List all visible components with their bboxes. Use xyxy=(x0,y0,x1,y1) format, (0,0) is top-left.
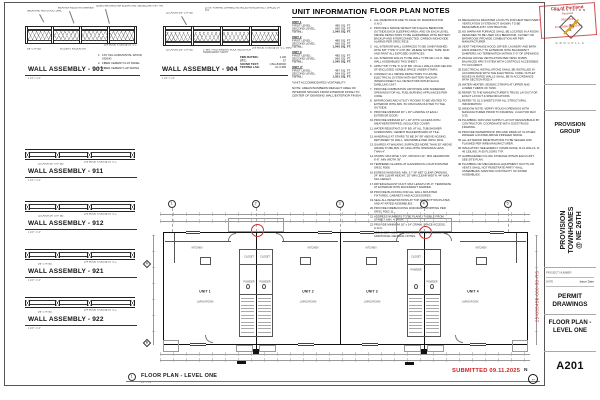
submitted-stamp: SUBMITTED 09.11.2025 xyxy=(452,368,520,374)
room-label-living: LIVING ROOM xyxy=(300,301,317,304)
note-item: ELECTRICAL INSTALLATIONS SHALL BE INSTAL… xyxy=(458,68,540,82)
note-item: TEMPERED GLAZING AT HAZARDOUS LOCATIONS … xyxy=(370,163,452,170)
note-item: PLUMBING OR MECHANICAL EQUIPMENT, DUCTS … xyxy=(458,163,540,177)
window-marker xyxy=(362,343,378,345)
toilet-fixture xyxy=(430,284,434,289)
scale-bar xyxy=(405,362,414,365)
sheet-title-line2: LEVEL ONE xyxy=(546,328,594,336)
room-label-powder: POWDER xyxy=(259,281,270,284)
window-marker xyxy=(190,343,206,345)
note-item: INSULATION: SEE ENERGY COMPLIANCE; R-21 … xyxy=(458,147,540,154)
assembly-scale: 1 1/2" = 1'-0" xyxy=(162,77,175,80)
note-item: NO WARM AIR FURNACE SHALL BE LOCATED IN … xyxy=(458,31,540,45)
rating-table: FIRE RATING:1 HR STC:57 SOUND TEST:USG-8… xyxy=(240,56,290,70)
callout: SHEATHING PER STRUCTURAL xyxy=(27,10,62,13)
note-item: BATHROOMS AND UTILITY ROOMS TO BE VENTED… xyxy=(370,100,452,110)
note-item: EGRESS WINDOWS: MIN. 5.7 SF NET CLEAR OP… xyxy=(370,171,452,181)
window-marker xyxy=(298,343,314,345)
view-title-rule xyxy=(126,381,540,382)
note-item: VENT THE RANGE HOOD, DRYER, LAUNDRY AND … xyxy=(458,45,540,55)
unit-row-total: TOTAL:1,045 SQ. FT. xyxy=(292,31,351,34)
rating-row: TESTING LAB:UL U305 xyxy=(240,66,286,69)
siding-type-item: 1X6 T&G HORIZONTAL WOOD SIDING xyxy=(98,54,143,61)
entry-stoop xyxy=(259,345,276,352)
title-rule xyxy=(25,277,137,278)
stamp-line: 25-035456-000-00-RS xyxy=(553,23,583,29)
assembly-scale: 1 1/2" = 1'-0" xyxy=(28,279,41,282)
assembly-title: WALL ASSEMBLY - 904 xyxy=(162,66,238,73)
window-marker xyxy=(490,231,504,233)
callout: 2X4 WOOD STUDS @ 16" O.C. xyxy=(84,261,117,264)
room-label-unit: UNIT 4 xyxy=(467,290,478,293)
stair-run xyxy=(241,298,254,334)
callout: (1) LAYER 5/8" GYP. BD. xyxy=(38,163,64,166)
assembly-scale: 1 1/2" = 1'-0" xyxy=(28,77,41,80)
sheet-title-line1: FLOOR PLAN - xyxy=(546,320,594,328)
room-label-kitchen: KITCHEN xyxy=(366,247,377,250)
phase-title: PERMIT DRAWINGS xyxy=(546,293,594,309)
callout: 3" MIN. THICK MINERAL WOOL INSULATION TH… xyxy=(203,49,258,54)
drawing-sheet: SHEATHING PER STRUCTURAL WEATHER RESISTA… xyxy=(0,0,600,400)
assembly-scale: 1 1/2" = 1'-0" xyxy=(28,327,41,330)
assembly-title: WALL ASSEMBLY - 921 xyxy=(28,268,104,275)
room-label-kitchen: KITCHEN xyxy=(476,247,487,250)
note-item: PROVIDE COMBUSTION AIR INTAKE AND SCREEN… xyxy=(370,88,452,98)
kitchen-counter xyxy=(282,241,338,242)
assembly-title: WALL ASSEMBLY - 911 xyxy=(28,168,103,175)
title-block-fields: PROJECT NUMBER 2025001 DATE Issue Date xyxy=(546,269,594,287)
stamp-line: Received xyxy=(553,11,583,17)
project-name: PROVISION TOWNHOMES @ NE 26TH xyxy=(560,190,584,270)
note-item: GARBAGE/RECYCLING STORAGE WITHIN EACH UN… xyxy=(458,155,540,162)
note-item: REFER TO S1.0 SHEETS FOR ALL STRUCTURAL … xyxy=(458,100,540,107)
title-rule xyxy=(160,75,288,76)
entry-stoop xyxy=(404,345,421,352)
party-wall-grid3 xyxy=(340,232,341,345)
room-label-powder: POWDER xyxy=(243,281,254,284)
north-label: N xyxy=(524,368,527,373)
callout: (2) LAYERS 5/8" GYP. BD. xyxy=(166,12,193,15)
permit-number-vertical: 25-035456-000-00-RS xyxy=(535,252,540,342)
room-label-kitchen: KITCHEN xyxy=(192,247,203,250)
note-item: PROVIDE MINIMUM 36" x 36" LANDING AT EAC… xyxy=(370,111,452,118)
window-marker xyxy=(360,231,374,233)
callout: (2) LAYERS 5/8" GYP. BD. xyxy=(166,49,193,52)
note-item: ALL INTERIOR WALL SURFACES TO BE GWB FIN… xyxy=(370,45,452,55)
siding-type-list: 1X6 T&G HORIZONTAL WOOD SIDINGFIBER CEME… xyxy=(98,54,143,72)
unit-row-total: TOTAL:1,045 SQ. FT. xyxy=(292,46,351,49)
dimension-ticks xyxy=(160,219,530,223)
unit-information-body: UNIT 1 FIRST LEVEL:485 SQ. FT. SECOND LE… xyxy=(292,21,367,98)
note-item: APPLY 5/8" TYPE 'X' GYP. BD. ON ALL WALL… xyxy=(370,65,452,72)
kitchen-island xyxy=(476,257,487,265)
room-label-closet: CLOSET xyxy=(244,256,254,259)
note-item: ALL INTERIOR WALLS TO BE WALL TYPE 911 U… xyxy=(370,57,452,64)
note-item: PROVIDE MINIMUM 22" x 30" ATTIC ACCESS W… xyxy=(370,119,452,126)
callout: 5/8" GYP. BD. xyxy=(38,263,52,266)
north-arrow-icon: ← xyxy=(528,374,538,384)
note-item: REFER TO THE MANUFACTURER'S TRUSS LAYOUT… xyxy=(458,92,540,99)
title-rule xyxy=(25,177,137,178)
room-label-unit: UNIT 2 xyxy=(302,290,313,293)
unit-info-block: UNIT 4* FIRST LEVEL:487 SQ. FT. SECOND L… xyxy=(292,66,367,79)
room-label-unit: UNIT 1 xyxy=(199,290,210,293)
note-item: WINDOW NOTE: VERIFY ROUGH OPENINGS WITH … xyxy=(458,108,540,118)
grid-bubble-3: 3 xyxy=(336,200,344,208)
note-item: WATER HEATER: SEISMIC STRAPS AT UPPER AN… xyxy=(458,83,540,90)
toilet-fixture xyxy=(246,284,250,289)
callout: 2X6 WOOD STUDS @ 16" O.C. xyxy=(84,161,117,164)
assembly-title: WALL ASSEMBLY - 922 xyxy=(28,316,104,323)
kitchen-counter xyxy=(516,233,517,263)
powder-wall xyxy=(407,294,441,295)
grid-bubble-1: 1 xyxy=(168,200,176,208)
unit-info-block: UNIT 2 FIRST LEVEL:485 SQ. FT. SECOND LE… xyxy=(292,36,367,49)
kitchen-counter xyxy=(343,241,399,242)
unit-info-footnote: *UNIT ACCOMMODATES VISITABILITY xyxy=(292,82,367,85)
entry-stoop xyxy=(236,345,253,352)
unit-row-total: TOTAL:1,051 SQ. FT. xyxy=(292,76,351,79)
title-block-divider xyxy=(544,110,596,111)
title-rule xyxy=(25,229,137,230)
logo-sub-text: G R O U P L L C xyxy=(553,41,587,45)
kitchen-counter xyxy=(174,233,175,263)
callout: 2X4 WOOD STUDS @ 16" O.C. xyxy=(84,309,117,312)
callout: WEATHER RESISTANT BARRIER xyxy=(58,7,94,10)
wall-section-911 xyxy=(25,149,135,160)
callout: 2X6 WOOD STUDS @ 16" O.C. xyxy=(84,213,117,216)
callout: 25 GA. FURRING CHANNEL INSTALLED HORIZON… xyxy=(205,7,285,12)
assembly-scale: 1 1/2" = 1'-0" xyxy=(28,179,41,182)
entry-stoop xyxy=(427,345,444,352)
entry-porch-outline xyxy=(228,218,284,232)
stair-run xyxy=(426,298,439,334)
unit-info-block: UNIT 1 FIRST LEVEL:485 SQ. FT. SECOND LE… xyxy=(292,21,367,34)
room-label-closet: CLOSET xyxy=(260,256,270,259)
note-item: PROVIDE WATERPROOF PAN AND DRAIN AT CLOT… xyxy=(458,131,540,138)
wall-section-901 xyxy=(25,26,137,44)
callout: 5/8" GYP. BD. xyxy=(38,311,52,314)
toilet-fixture xyxy=(414,284,418,289)
stair-run xyxy=(409,298,422,334)
wall-section-904 xyxy=(163,26,281,46)
project-name-line1: PROVISION TOWNHOMES xyxy=(560,190,576,270)
window-marker xyxy=(318,231,332,233)
scale-bar xyxy=(237,361,246,364)
room-label-kitchen: KITCHEN xyxy=(308,247,319,250)
unit-row-total: TOTAL:1,045 SQ. FT. xyxy=(292,61,351,64)
project-name-line2: @ NE 26TH xyxy=(576,190,584,270)
callout: (1) LAYER 5/8" GYP. BD. xyxy=(38,215,64,218)
room-label-living: LIVING ROOM xyxy=(364,301,381,304)
notes-column-2: MECHANICAL REGISTER LAYOUTS FOR HEAT REC… xyxy=(458,19,540,178)
title-block-divider xyxy=(544,351,596,352)
kitchen-island xyxy=(300,257,311,265)
title-block-field: PROJECT NUMBER 2025001 xyxy=(546,269,594,278)
note-item: MECHANICAL REGISTER LAYOUTS FOR HEAT REC… xyxy=(458,19,540,29)
note-item: ALL DIMENSIONS ARE TO FACE OF FRAMING/ST… xyxy=(370,19,452,26)
room-label-living: LIVING ROOM xyxy=(197,301,214,304)
grid-bubble-5: 5 xyxy=(504,200,512,208)
firm-name: PROVISION GROUP xyxy=(546,122,594,135)
closet-wall xyxy=(407,264,441,265)
note-item: GUARDS AT WALKING SURFACES MORE THAN 30"… xyxy=(370,144,452,154)
room-label-powder: POWDER xyxy=(410,269,421,272)
unit-info-note: NOTE: AREAS/NUMBERS REFLECT AREA OF INTE… xyxy=(292,87,363,98)
view-title-text: FLOOR PLAN - LEVEL ONE xyxy=(141,373,217,379)
assembly-scale: 1 1/2" = 1'-0" xyxy=(28,231,41,234)
wall-section-912 xyxy=(25,201,135,212)
callout: R-21 BATT INSULATION xyxy=(60,48,86,51)
callout: 2X6 WOOD STUDS @ 16" O.C. xyxy=(104,44,137,47)
note-item: WHOLE HOUSE VENTILATION PER ORSC M1505; … xyxy=(458,57,540,67)
dimension-ticks xyxy=(160,212,530,216)
title-block-divider xyxy=(544,314,596,315)
city-of-portland-stamp: City of Portland Received 09/11/2025 25-… xyxy=(539,2,597,39)
note-item: CONNECT ALL SMOKE DETECTORS TO HOUSE ELE… xyxy=(370,73,452,87)
callout: 2X6 WOOD STUDS @ 16" O.C. (MIN) xyxy=(252,47,291,50)
room-label-closet: CLOSET xyxy=(411,256,421,259)
dimension-ticks xyxy=(152,235,156,345)
corner-bay xyxy=(512,340,528,352)
kitchen-island xyxy=(366,257,377,265)
notes-column-1: ALL DIMENSIONS ARE TO FACE OF FRAMING/ST… xyxy=(370,19,452,240)
stair-run xyxy=(258,298,271,334)
toilet-fixture xyxy=(262,284,266,289)
unit-information-heading: UNIT INFORMATION xyxy=(292,7,367,16)
note-item: STAIRS: MAX RISE 7-3/4", MIN RUN 10", MI… xyxy=(370,155,452,162)
heading-rule xyxy=(292,17,364,18)
assembly-title: WALL ASSEMBLY - 912 xyxy=(28,220,104,227)
note-item: SEAL ALL PENETRATIONS AT TOP AND BOTTOM … xyxy=(370,199,452,206)
grid-bubble-4: 4 xyxy=(420,200,428,208)
assembly-title: WALL ASSEMBLY - 901 xyxy=(28,66,104,73)
corner-bay xyxy=(163,340,179,352)
stamp-line: 09/11/2025 xyxy=(553,17,583,23)
siding-type-item: FIBER CEMENT FLAT PANEL xyxy=(98,62,143,65)
floor-plan-notes-heading: FLOOR PLAN NOTES xyxy=(370,6,450,15)
siding-type-item: FIBER CEMENT LAP SIDING xyxy=(98,67,143,70)
note-item: PROVIDE A SMOKE DETECTOR IN EACH BEDROOM… xyxy=(370,27,452,44)
window-marker xyxy=(470,343,486,345)
grid-bubble-2: 2 xyxy=(252,200,260,208)
callout: SIDING MATERIAL PER ELEVATIONS, SEE BELO… xyxy=(96,5,163,8)
sheet-title: FLOOR PLAN - LEVEL ONE xyxy=(546,320,594,335)
kitchen-island xyxy=(200,257,211,265)
room-label-living: LIVING ROOM xyxy=(462,301,479,304)
dimension-ticks xyxy=(160,358,530,362)
window-marker xyxy=(186,231,200,233)
title-block-field: DATE Issue Date xyxy=(546,278,594,287)
note-item: WATER RESISTANT GYP. BD. AT ALL TUB/SHOW… xyxy=(370,127,452,134)
closet-wall xyxy=(239,264,273,265)
sheet-number: A201 xyxy=(546,360,594,372)
title-rule xyxy=(25,75,140,76)
powder-wall xyxy=(239,294,273,295)
title-rule xyxy=(25,325,137,326)
exterior-wall-outline xyxy=(163,232,528,345)
note-item: PLUMBING: DWV AND SUPPLY LAYOUT DESIGN/B… xyxy=(458,119,540,129)
note-item: ALL EXTERIOR PENETRATIONS TO BE SEALED A… xyxy=(458,139,540,146)
dimension-ticks xyxy=(160,352,530,356)
callout: 5/8" GYP. BD. xyxy=(27,48,41,51)
title-block-divider xyxy=(544,84,596,85)
title-block-divider xyxy=(544,267,596,268)
note-item: DRYER EXHAUST DUCT: MAX LENGTH 35'-0"; T… xyxy=(370,183,452,190)
wall-section-921 xyxy=(25,249,135,260)
room-label-powder: POWDER xyxy=(426,281,437,284)
note-item: HANDRAILS AT STAIRS TO BE 34"-38" ABOVE … xyxy=(370,135,452,142)
wall-section-922 xyxy=(25,297,135,308)
note-item: PROVIDE BLOCKING FOR ALL WALL MOUNTED FI… xyxy=(370,191,452,198)
room-label-unit: UNIT 3 xyxy=(366,290,377,293)
entry-porch-outline xyxy=(396,218,452,232)
unit-info-block: UNIT 3 FIRST LEVEL:485 SQ. FT. SECOND LE… xyxy=(292,51,367,64)
